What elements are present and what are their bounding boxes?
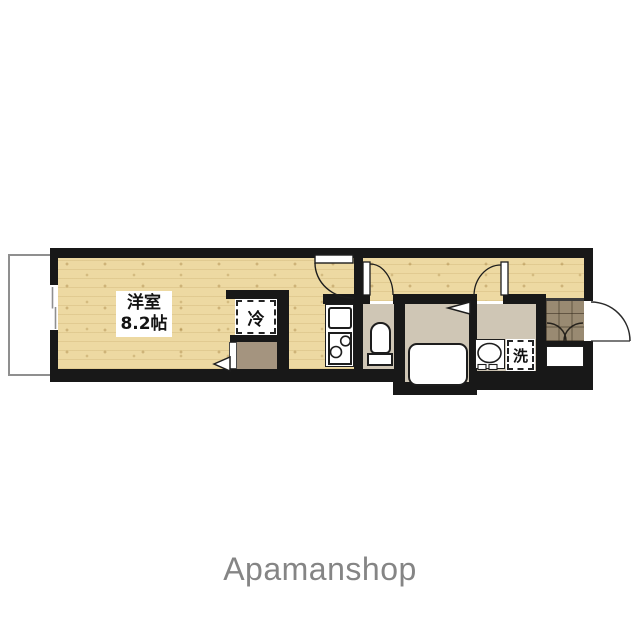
front-door-icon [591, 302, 630, 341]
wall-fridge-closet-divider [230, 335, 278, 342]
wall-room-divider [354, 248, 363, 369]
brand-logo: Apamanshop [0, 551, 640, 588]
shoe-cabinet [546, 346, 584, 367]
kitchen-stove [328, 332, 352, 365]
balcony-window [50, 285, 58, 330]
laundry-label: 洗 [506, 339, 535, 371]
closet-door [229, 342, 237, 369]
room-label: 洋室 8.2帖 [116, 291, 172, 337]
bathtub [408, 343, 468, 386]
front-door-opening [584, 301, 592, 341]
wall-hall-south-b [393, 294, 477, 304]
wall-kitchen-stub [323, 294, 354, 304]
refrigerator-label: 冷 [235, 299, 277, 335]
laundry-space: 洗 [506, 339, 535, 371]
entrance-tile-floor [546, 301, 584, 341]
wall-fridge-nook-right [277, 290, 289, 369]
floorplan-image: 洗 冷 洋室 8.2帖 [0, 0, 640, 640]
wall-right-upper [584, 248, 593, 301]
room-name: 洋室 [127, 293, 161, 314]
wall-left-upper [50, 248, 58, 285]
closet [237, 342, 277, 369]
wall-top [50, 248, 593, 258]
kitchen-sink [328, 307, 352, 329]
vanity-counter [475, 339, 505, 369]
main-room-floor [58, 258, 354, 369]
entrance-step-line [546, 298, 584, 301]
wall-washroom-entrance [536, 294, 546, 371]
wall-toilet-right [394, 294, 405, 394]
balcony [8, 254, 52, 376]
toilet-bowl [370, 322, 391, 354]
toilet-tank [367, 353, 393, 366]
refrigerator-space: 冷 [235, 299, 277, 335]
room-size: 8.2帖 [120, 314, 167, 335]
wall-bottom-main [50, 369, 403, 382]
wall-hall-south-a [354, 294, 370, 304]
